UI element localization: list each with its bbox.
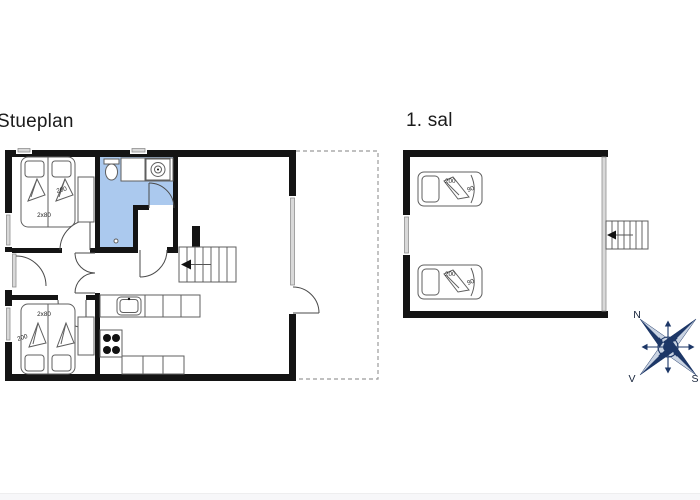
pillow [422, 176, 439, 202]
door-inner-room [140, 250, 167, 277]
window-living-room-right [289, 196, 297, 287]
floor-drain-icon [114, 239, 118, 243]
window-first-floor-left [403, 215, 411, 255]
single-bed-bottom: 200 90 [418, 265, 482, 299]
window-bedroom-bottom-left [5, 306, 13, 342]
double-door-hall [75, 253, 95, 293]
entrance-door-left [5, 252, 47, 290]
first-wall-bottom [403, 311, 608, 318]
pillow [25, 161, 44, 177]
kitchen-counter [100, 295, 200, 317]
bedroom-top-left: 200 2x80 [21, 157, 94, 227]
wardrobe [78, 177, 94, 222]
kitchen [100, 295, 200, 374]
kitchen-lower-counter [122, 356, 184, 374]
stairs-first-floor [606, 221, 648, 249]
stove-icon [100, 330, 122, 357]
window-top-bedroom [16, 147, 32, 155]
compass-label-north: N [633, 309, 641, 321]
first-wall-top [403, 150, 608, 157]
page-bottom-strip [0, 493, 700, 500]
toilet-icon [104, 159, 119, 180]
wardrobe [78, 317, 94, 355]
compass-rose-icon: N V S [628, 309, 698, 385]
ground-floor-plan: 200 2x80 [5, 147, 379, 380]
bed-width-label: 2x80 [37, 212, 51, 219]
washing-machine-icon [146, 159, 170, 180]
terrace-dashed-outline [296, 151, 378, 379]
double-bed-bottom: 2x80 200 [16, 304, 75, 374]
bed-length-label: 200 [445, 178, 456, 185]
bed-width-label: 2x80 [37, 311, 51, 318]
terrace-door-right [289, 286, 320, 314]
pillow [25, 355, 44, 371]
pillow [52, 355, 71, 371]
single-bed-top: 200 90 [418, 172, 482, 206]
bedroom-bottom-left: 2x80 200 [16, 304, 94, 374]
pillow [52, 161, 71, 177]
bed-length-label: 200 [445, 271, 456, 278]
compass-label-south: S [691, 373, 698, 385]
floorplan-drawing: 200 2x80 [0, 0, 700, 500]
stairs-ground-floor [179, 247, 236, 282]
window-top-bathroom [130, 147, 147, 155]
floorplan-page: Stueplan 1. sal [0, 0, 700, 500]
window-bedroom-top-left [5, 213, 13, 247]
first-floor-plan: 200 90 200 90 [403, 150, 649, 318]
compass-label-west: V [628, 373, 635, 385]
pillow [422, 269, 439, 295]
kitchen-sink-icon [117, 297, 141, 315]
double-bed-top: 200 2x80 [21, 157, 75, 227]
first-wall-right-railing [602, 157, 606, 311]
